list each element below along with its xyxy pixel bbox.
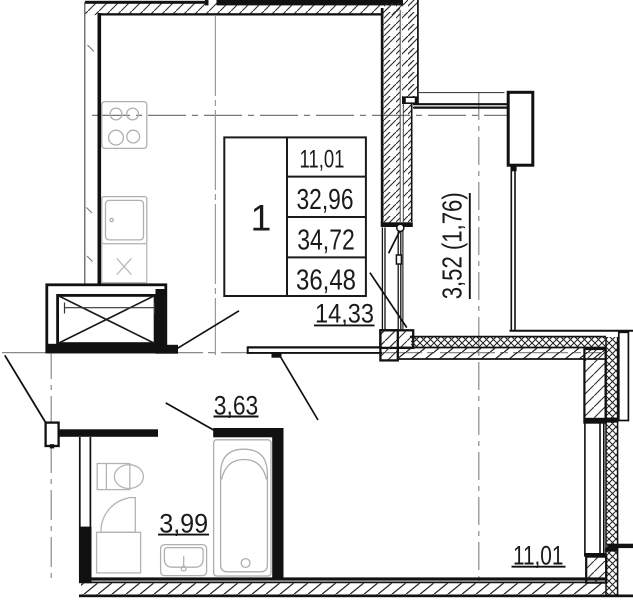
svg-text:3,52 (1,76): 3,52 (1,76) bbox=[437, 192, 468, 299]
svg-text:1: 1 bbox=[250, 196, 271, 238]
svg-text:11,01: 11,01 bbox=[300, 145, 345, 173]
svg-text:34,72: 34,72 bbox=[297, 225, 355, 257]
svg-text:32,96: 32,96 bbox=[297, 184, 354, 216]
svg-text:36,48: 36,48 bbox=[296, 264, 356, 296]
svg-text:14,33: 14,33 bbox=[315, 299, 374, 329]
